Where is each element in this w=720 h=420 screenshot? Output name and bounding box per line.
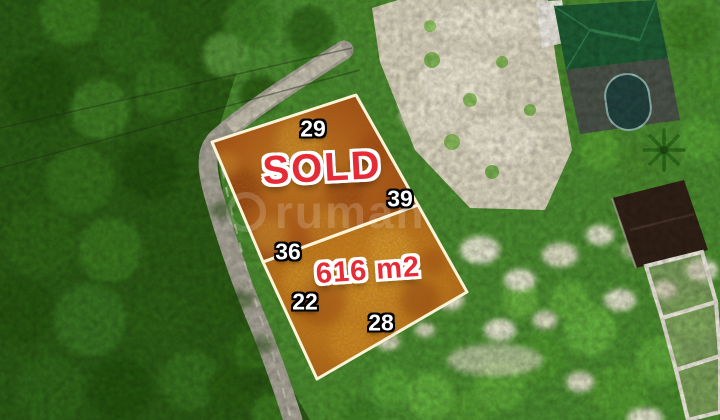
plot-area-label: 616 m2	[315, 253, 421, 289]
side-length-south-label: 28	[368, 312, 394, 335]
side-length-middle-label: 36	[275, 241, 301, 264]
sold-status-label: SOLD	[261, 145, 382, 191]
watermark-logo-icon	[226, 192, 266, 232]
aerial-photo-scene: rumah 29 SOLD 39 36 616 m2 22 28	[0, 0, 720, 420]
side-length-north-label: 29	[300, 118, 326, 141]
side-length-west-label: 22	[292, 291, 318, 314]
side-length-east-label: 39	[387, 188, 413, 211]
